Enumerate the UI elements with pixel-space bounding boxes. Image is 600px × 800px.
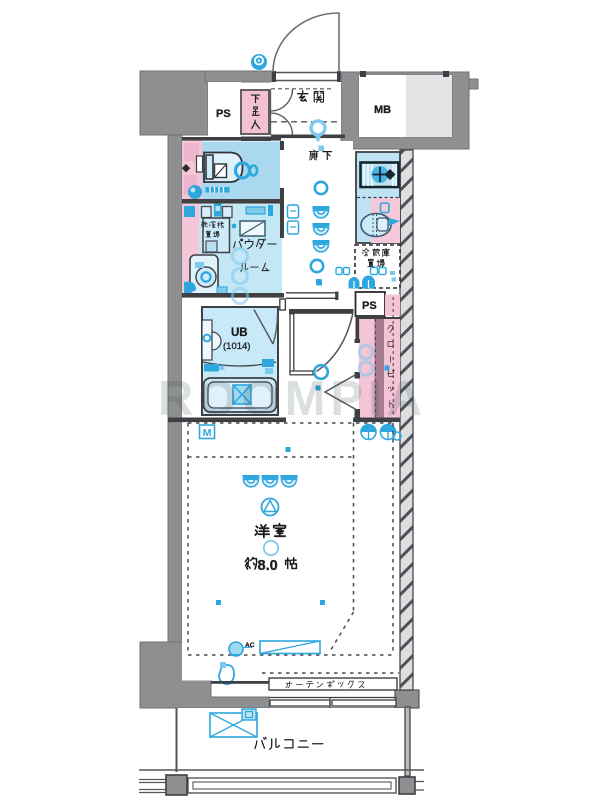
svg-text:PS: PS xyxy=(362,300,377,312)
svg-text:MB: MB xyxy=(374,104,391,116)
svg-text:M: M xyxy=(203,427,212,439)
svg-text:UB: UB xyxy=(231,327,248,339)
svg-text:(1014): (1014) xyxy=(223,341,250,352)
svg-text:ROOMPIA: ROOMPIA xyxy=(158,372,427,426)
svg-text:PS: PS xyxy=(216,108,231,120)
svg-text:8.0: 8.0 xyxy=(258,558,278,574)
